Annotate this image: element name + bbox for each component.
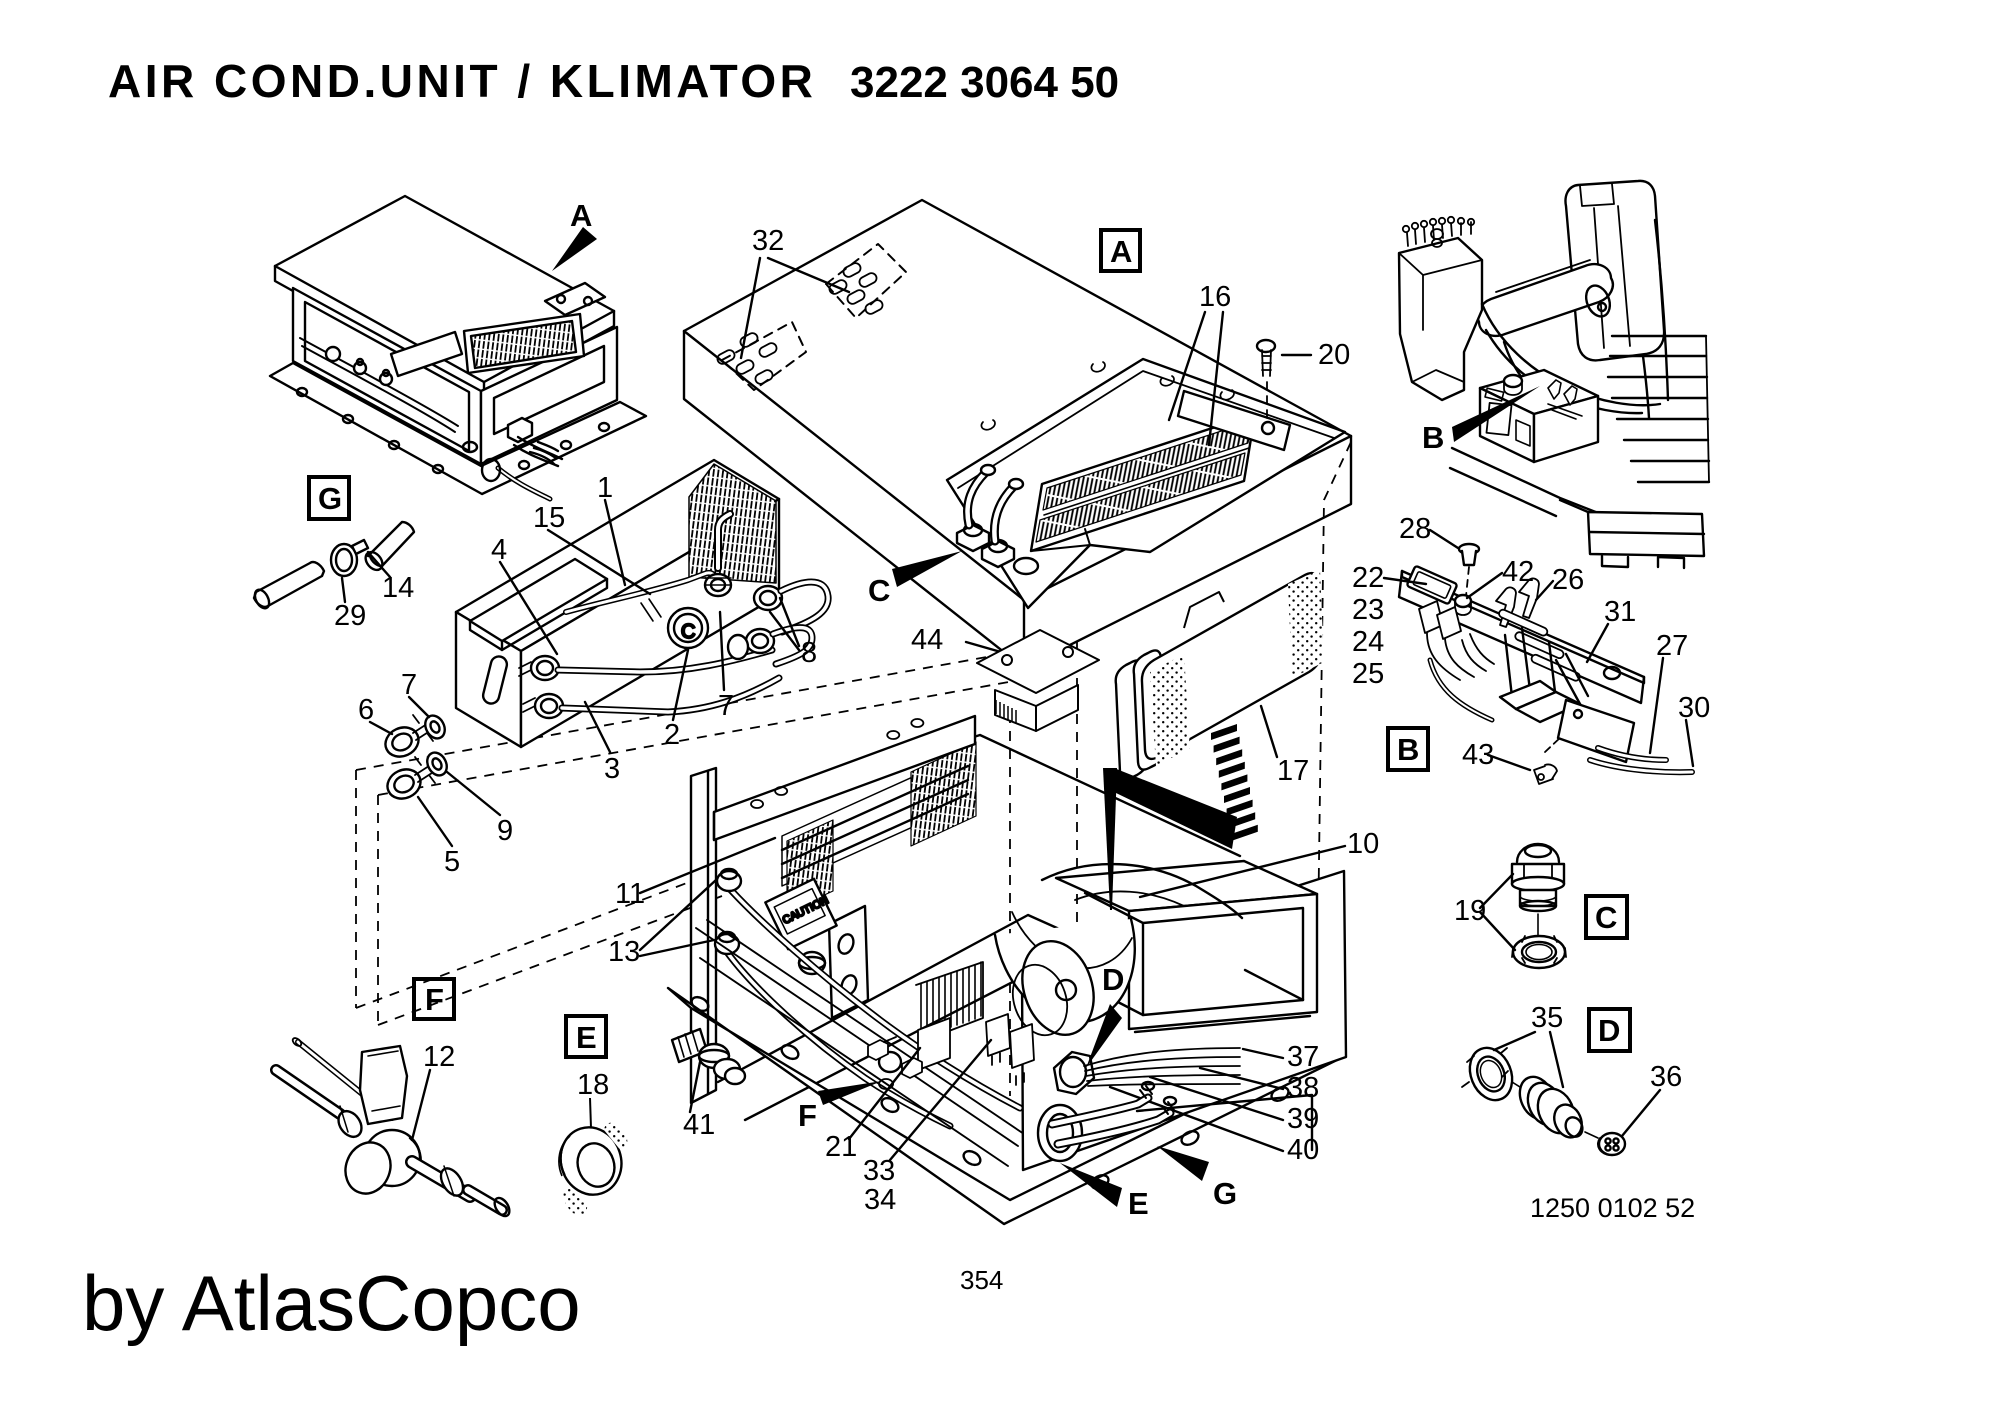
svg-text:39: 39 [1287, 1103, 1319, 1135]
svg-text:354: 354 [960, 1265, 1003, 1295]
svg-text:C: C [681, 621, 695, 643]
svg-text:5: 5 [444, 846, 460, 878]
svg-text:22: 22 [1352, 562, 1384, 594]
svg-text:42: 42 [1502, 556, 1534, 588]
svg-text:12: 12 [423, 1041, 455, 1073]
svg-text:43: 43 [1462, 739, 1494, 771]
svg-text:11: 11 [615, 878, 645, 910]
svg-text:36: 36 [1650, 1061, 1682, 1093]
svg-text:28: 28 [1399, 513, 1431, 545]
svg-text:34: 34 [864, 1184, 896, 1216]
svg-text:AIR COND.UNIT / KLIMATOR: AIR COND.UNIT / KLIMATOR [108, 55, 816, 107]
svg-text:44: 44 [911, 624, 943, 656]
svg-text:7: 7 [401, 669, 417, 701]
svg-text:25: 25 [1352, 658, 1384, 690]
svg-text:F: F [798, 1098, 817, 1133]
svg-text:3222 3064 50: 3222 3064 50 [850, 58, 1119, 107]
svg-text:19: 19 [1454, 895, 1486, 927]
svg-text:13: 13 [608, 936, 640, 968]
svg-text:E: E [576, 1020, 597, 1055]
svg-text:6: 6 [358, 694, 374, 726]
svg-text:F: F [425, 982, 444, 1017]
svg-text:41: 41 [683, 1109, 715, 1141]
svg-text:20: 20 [1318, 339, 1350, 371]
svg-text:37: 37 [1287, 1041, 1319, 1073]
svg-text:21: 21 [825, 1131, 857, 1163]
svg-text:1: 1 [597, 472, 613, 504]
svg-text:C: C [1595, 900, 1617, 935]
svg-text:7: 7 [718, 690, 734, 722]
svg-text:38: 38 [1287, 1072, 1319, 1104]
svg-text:9: 9 [497, 815, 513, 847]
svg-text:8: 8 [801, 637, 817, 669]
svg-text:4: 4 [491, 534, 507, 566]
svg-text:27: 27 [1656, 630, 1688, 662]
svg-text:24: 24 [1352, 626, 1384, 658]
svg-text:E: E [1128, 1186, 1149, 1221]
svg-text:10: 10 [1347, 828, 1379, 860]
svg-text:D: D [1102, 962, 1124, 997]
svg-text:A: A [570, 198, 592, 233]
svg-text:15: 15 [533, 502, 565, 534]
svg-text:33: 33 [863, 1155, 895, 1187]
svg-text:14: 14 [382, 572, 414, 604]
svg-text:3: 3 [604, 753, 620, 785]
svg-text:30: 30 [1678, 692, 1710, 724]
svg-text:1250 0102 52: 1250 0102 52 [1530, 1193, 1695, 1223]
svg-text:18: 18 [577, 1069, 609, 1101]
svg-text:C: C [868, 573, 890, 608]
svg-text:B: B [1422, 420, 1444, 455]
svg-text:by AtlasCopco: by AtlasCopco [82, 1259, 581, 1347]
svg-text:A: A [1110, 234, 1132, 269]
svg-text:B: B [1397, 732, 1419, 767]
svg-text:29: 29 [334, 600, 366, 632]
svg-text:31: 31 [1604, 596, 1636, 628]
svg-text:G: G [318, 481, 342, 516]
svg-text:17: 17 [1277, 755, 1309, 787]
svg-text:32: 32 [752, 225, 784, 257]
svg-text:26: 26 [1552, 564, 1584, 596]
svg-text:35: 35 [1531, 1002, 1563, 1034]
svg-text:23: 23 [1352, 594, 1384, 626]
svg-text:G: G [1213, 1176, 1237, 1211]
svg-text:40: 40 [1287, 1134, 1319, 1166]
svg-text:2: 2 [664, 719, 680, 751]
svg-text:16: 16 [1199, 281, 1231, 313]
svg-text:D: D [1598, 1013, 1620, 1048]
